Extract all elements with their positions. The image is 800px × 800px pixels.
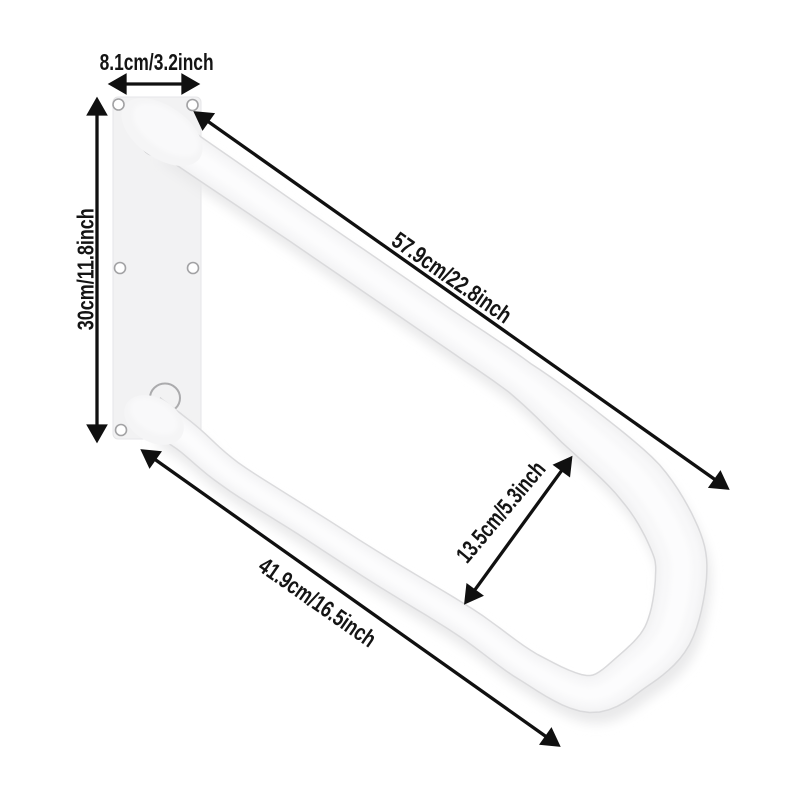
- svg-text:30cm/11.8inch: 30cm/11.8inch: [73, 208, 99, 330]
- svg-text:8.1cm/3.2inch: 8.1cm/3.2inch: [100, 49, 214, 75]
